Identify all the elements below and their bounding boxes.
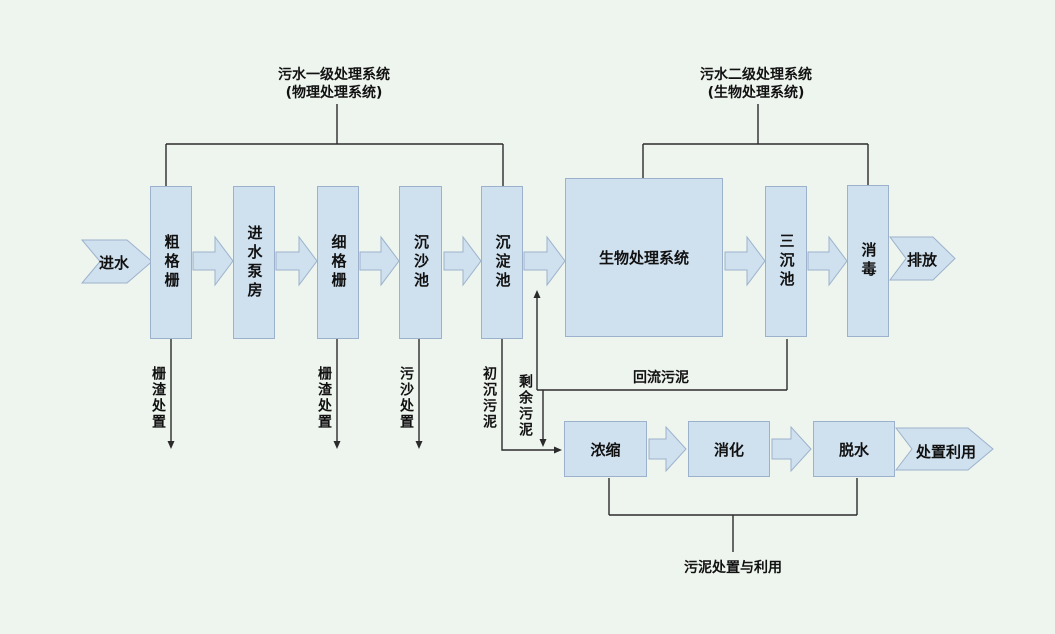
box-tertiary-sedimentation: 三沉池 bbox=[765, 186, 807, 337]
box-coarse-screen: 粗格栅 bbox=[150, 186, 192, 339]
secondary-system-subtitle: (生物处理系统) bbox=[656, 84, 856, 102]
secondary-system-title: 污水二级处理系统 bbox=[656, 66, 856, 84]
secondary-system-header: 污水二级处理系统 (生物处理系统) bbox=[656, 66, 856, 102]
flow-arrow-icon bbox=[276, 237, 317, 285]
flow-arrow-icon bbox=[524, 237, 565, 285]
box-primary-sedimentation-label: 沉淀池 bbox=[495, 234, 510, 291]
return-sludge-label: 回流污泥 bbox=[611, 367, 711, 387]
flow-arrow-icon bbox=[808, 237, 847, 285]
flow-arrow-icon bbox=[649, 427, 686, 471]
box-inlet-pump-house-label: 进水泵房 bbox=[247, 225, 262, 301]
box-fine-screen-label: 细格栅 bbox=[331, 234, 346, 291]
primary-sludge-label: 初沉污泥 bbox=[478, 366, 496, 430]
primary-bracket-line bbox=[166, 104, 503, 186]
box-biological-treatment: 生物处理系统 bbox=[565, 178, 723, 337]
box-biological-treatment-label: 生物处理系统 bbox=[599, 247, 689, 268]
box-coarse-screen-label: 粗格栅 bbox=[164, 234, 179, 291]
grit-disposal-label: 污沙处置 bbox=[395, 366, 413, 430]
box-fine-screen: 细格栅 bbox=[317, 186, 359, 339]
secondary-bracket-line bbox=[643, 104, 868, 185]
box-disinfection-label: 消毒 bbox=[861, 242, 876, 280]
arrowhead-down-icon bbox=[540, 439, 547, 447]
inflow-label: 进水 bbox=[90, 252, 138, 273]
box-digestion-label: 消化 bbox=[714, 439, 744, 460]
primary-system-title: 污水一级处理系统 bbox=[234, 66, 434, 84]
arrowhead-down-icon bbox=[168, 441, 175, 449]
sludge-caption: 污泥处置与利用 bbox=[653, 557, 813, 577]
wastewater-treatment-flowchart: 污水一级处理系统 (物理处理系统) 污水二级处理系统 (生物处理系统) 进水 排… bbox=[0, 0, 1055, 634]
outflow-label: 排放 bbox=[898, 249, 946, 270]
box-digestion: 消化 bbox=[688, 421, 770, 477]
primary-system-header: 污水一级处理系统 (物理处理系统) bbox=[234, 66, 434, 102]
screenings1-label: 栅渣处置 bbox=[147, 366, 165, 430]
box-dewatering-label: 脱水 bbox=[839, 439, 869, 460]
flow-arrow-icon bbox=[193, 237, 233, 285]
box-inlet-pump-house: 进水泵房 bbox=[233, 186, 275, 339]
flow-arrow-icon bbox=[772, 427, 811, 471]
arrowhead-down-icon bbox=[416, 441, 423, 449]
arrowhead-up-icon bbox=[534, 290, 541, 298]
box-disinfection: 消毒 bbox=[847, 185, 889, 337]
primary-system-subtitle: (物理处理系统) bbox=[234, 84, 434, 102]
flow-arrow-icon bbox=[725, 237, 765, 285]
box-grit-chamber: 沉沙池 bbox=[399, 186, 442, 339]
flow-arrow-icon bbox=[360, 237, 399, 285]
disposal-use-label: 处置利用 bbox=[908, 441, 984, 462]
box-tertiary-sedimentation-label: 三沉池 bbox=[779, 233, 794, 290]
box-dewatering: 脱水 bbox=[813, 421, 895, 477]
arrowhead-right-icon bbox=[554, 447, 562, 454]
box-thickening-label: 浓缩 bbox=[590, 439, 620, 460]
box-thickening: 浓缩 bbox=[564, 421, 647, 477]
excess-sludge-label: 剩余污泥 bbox=[514, 374, 532, 438]
box-primary-sedimentation: 沉淀池 bbox=[481, 186, 523, 339]
screenings2-label: 栅渣处置 bbox=[313, 366, 331, 430]
flow-arrow-icon bbox=[444, 237, 481, 285]
arrowhead-down-icon bbox=[334, 441, 341, 449]
box-grit-chamber-label: 沉沙池 bbox=[413, 234, 428, 291]
sludge-bracket-line bbox=[609, 478, 857, 552]
